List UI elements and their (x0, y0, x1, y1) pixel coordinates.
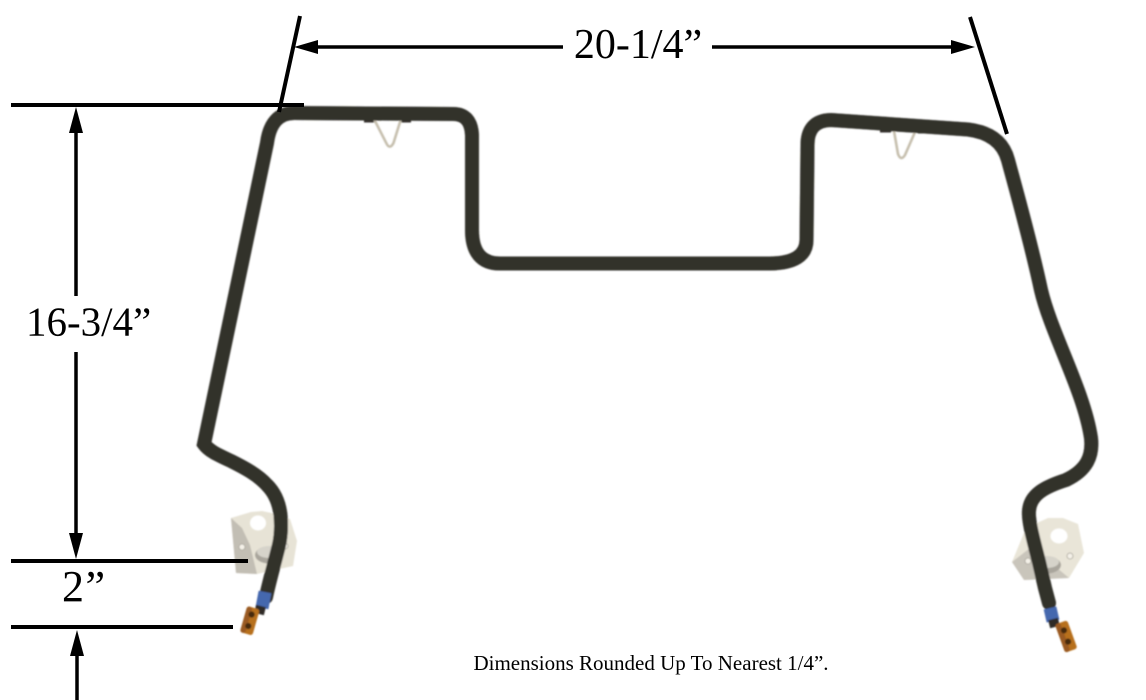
svg-text:20-1/4”: 20-1/4” (574, 22, 702, 68)
svg-text:Dimensions Rounded Up To Neare: Dimensions Rounded Up To Nearest 1/4”. (473, 651, 828, 675)
svg-text:2”: 2” (62, 562, 107, 611)
svg-text:16-3/4”: 16-3/4” (26, 299, 151, 345)
